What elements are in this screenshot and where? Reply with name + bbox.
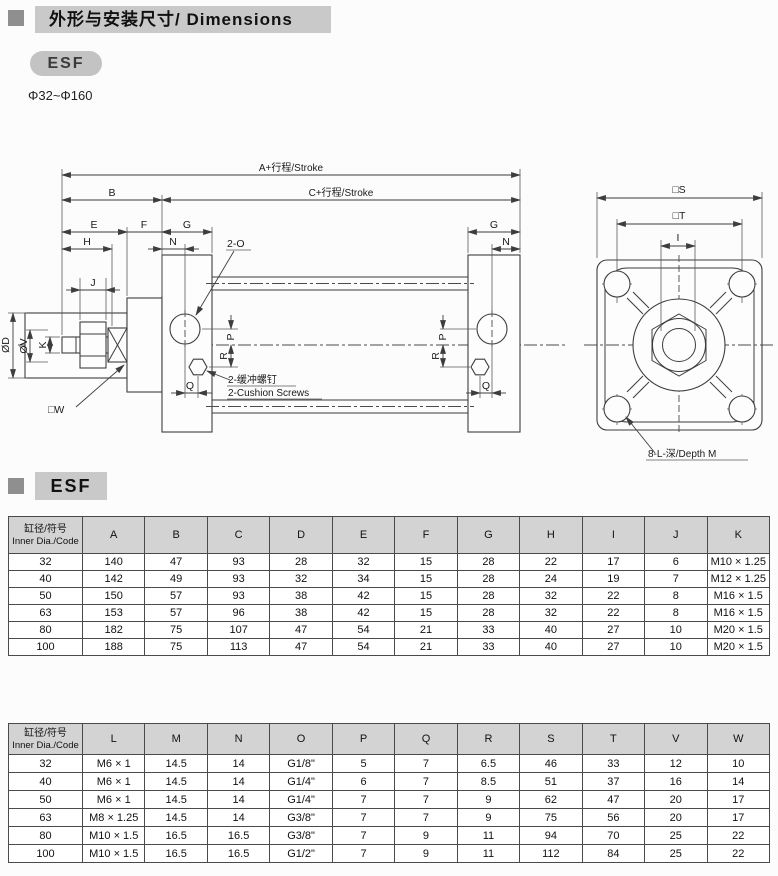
- dimension-cell: 12: [645, 755, 707, 773]
- dimension-cell: 51: [520, 773, 582, 791]
- dimension-cell: 40: [520, 639, 582, 656]
- column-header-f: F: [395, 517, 457, 554]
- bore-code-cell: 63: [9, 605, 83, 622]
- dimension-cell: 11: [457, 845, 519, 863]
- dim-label-a: A+行程/Stroke: [259, 161, 324, 174]
- column-header-g: G: [457, 517, 519, 554]
- rod-boss-circle: [633, 299, 725, 391]
- dim-label-j: J: [90, 277, 95, 289]
- dim-label-e: E: [90, 219, 97, 231]
- dimension-cell: 57: [145, 588, 207, 605]
- column-header-w: W: [707, 724, 769, 755]
- depth-callout: 8-L-深/Depth M: [648, 448, 716, 460]
- dimension-cell: M6 × 1: [83, 773, 145, 791]
- dimension-cell: 22: [707, 845, 769, 863]
- dimension-cell: 22: [582, 605, 644, 622]
- dimension-cell: 22: [582, 588, 644, 605]
- cushion-callout-cn: 2-缓冲螺钉: [228, 373, 277, 386]
- dimension-cell: 54: [332, 622, 394, 639]
- dimension-cell: 15: [395, 588, 457, 605]
- dimension-cell: 14: [207, 791, 269, 809]
- dimension-cell: 22: [520, 554, 582, 571]
- dimension-cell: 7: [395, 773, 457, 791]
- dimension-cell: 14.5: [145, 755, 207, 773]
- dim-label-p-front: P: [225, 333, 237, 340]
- dimension-cell: 84: [582, 845, 644, 863]
- dim-label-b: B: [108, 187, 115, 199]
- dimension-cell: 9: [395, 827, 457, 845]
- port-callout: 2-O: [227, 238, 245, 250]
- dimension-cell: 33: [457, 639, 519, 656]
- dimension-cell: 34: [332, 571, 394, 588]
- dimension-cell: 25: [645, 845, 707, 863]
- dimension-cell: M6 × 1: [83, 791, 145, 809]
- dim-label-r-front: R: [218, 352, 230, 360]
- bore-code-cell: 32: [9, 554, 83, 571]
- column-header-c: C: [207, 517, 269, 554]
- dim-label-g-front: G: [183, 219, 191, 231]
- column-header-h: H: [520, 517, 582, 554]
- dimension-cell: 8: [645, 605, 707, 622]
- dim-label-f: F: [141, 219, 147, 231]
- bore-code-cell: 50: [9, 588, 83, 605]
- dimension-cell: 6.5: [457, 755, 519, 773]
- dimension-cell: 112: [520, 845, 582, 863]
- dimension-cell: 6: [645, 554, 707, 571]
- bore-code-cell: 63: [9, 809, 83, 827]
- dimension-cell: 9: [457, 791, 519, 809]
- bore-code-cell: 100: [9, 845, 83, 863]
- dim-label-q-rear: Q: [482, 380, 490, 392]
- column-header-j: J: [645, 517, 707, 554]
- column-header-e: E: [332, 517, 394, 554]
- section-title: ESF: [35, 472, 107, 500]
- bore-code-cell: 80: [9, 827, 83, 845]
- table-row: 4014249933234152824197M12 × 1.25: [9, 571, 770, 588]
- dimension-cell: 32: [520, 605, 582, 622]
- dimension-cell: 28: [457, 605, 519, 622]
- dimension-cell: 14.5: [145, 773, 207, 791]
- dimension-cell: 14.5: [145, 791, 207, 809]
- dimension-cell: 32: [520, 588, 582, 605]
- bore-code-cell: 32: [9, 755, 83, 773]
- dimension-cell: 57: [145, 605, 207, 622]
- column-header-m: M: [145, 724, 207, 755]
- dimension-cell: 93: [207, 571, 269, 588]
- table-row: 80M10 × 1.516.516.5G3/8"791194702522: [9, 827, 770, 845]
- dimension-cell: 19: [582, 571, 644, 588]
- dimension-cell: 7: [395, 809, 457, 827]
- dimension-cell: M10 × 1.25: [707, 554, 769, 571]
- table-row: 50M6 × 114.514G1/4"77962472017: [9, 791, 770, 809]
- table-row: 1001887511347542133402710M20 × 1.5: [9, 639, 770, 656]
- dimension-cell: 10: [645, 639, 707, 656]
- dimension-cell: 94: [520, 827, 582, 845]
- bore-code-cell: 40: [9, 571, 83, 588]
- dimension-cell: 11: [457, 827, 519, 845]
- dimension-cell: 28: [457, 588, 519, 605]
- dimension-cell: 21: [395, 639, 457, 656]
- column-header-a: A: [83, 517, 145, 554]
- column-header-n: N: [207, 724, 269, 755]
- dimension-cell: 7: [332, 809, 394, 827]
- dimension-cell: 47: [270, 622, 332, 639]
- dimension-cell: 37: [582, 773, 644, 791]
- dimension-cell: 56: [582, 809, 644, 827]
- dimension-cell: 46: [520, 755, 582, 773]
- dimension-cell: 28: [457, 571, 519, 588]
- dimension-cell: G3/8": [270, 827, 332, 845]
- dim-label-ov: ØV: [18, 338, 30, 353]
- table-row: 100M10 × 1.516.516.5G1/2"7911112842522: [9, 845, 770, 863]
- table-row: 32M6 × 114.514G1/8"576.546331210: [9, 755, 770, 773]
- column-header-o: O: [270, 724, 332, 755]
- dimension-cell: 15: [395, 571, 457, 588]
- port-hole-front: [170, 314, 200, 344]
- column-header-q: Q: [395, 724, 457, 755]
- dimension-cell: 75: [145, 622, 207, 639]
- dimension-cell: G1/2": [270, 845, 332, 863]
- bore-code-cell: 100: [9, 639, 83, 656]
- column-header-k: K: [707, 517, 769, 554]
- dimension-cell: 49: [145, 571, 207, 588]
- table-row: 63M8 × 1.2514.514G3/8"77975562017: [9, 809, 770, 827]
- column-header-i: I: [582, 517, 644, 554]
- bore-code-cell: 40: [9, 773, 83, 791]
- dimension-cell: 182: [83, 622, 145, 639]
- dim-label-k: K: [37, 341, 49, 348]
- dim-label-q-front: Q: [186, 380, 194, 392]
- dimension-cell: 22: [707, 827, 769, 845]
- dim-label-i: I: [677, 232, 680, 244]
- dimension-table-l-w: 缸径/符号Inner Dia./CodeLMNOPQRSTVW32M6 × 11…: [8, 723, 770, 863]
- column-header-b: B: [145, 517, 207, 554]
- mount-hole-tl: [604, 271, 630, 297]
- dimension-cell: 10: [645, 622, 707, 639]
- dimension-cell: M20 × 1.5: [707, 622, 769, 639]
- dimension-cell: 140: [83, 554, 145, 571]
- dimension-cell: 153: [83, 605, 145, 622]
- column-header-r: R: [457, 724, 519, 755]
- dim-label-g-rear: G: [490, 219, 498, 231]
- dimension-cell: 93: [207, 554, 269, 571]
- dimension-cell: M10 × 1.5: [83, 827, 145, 845]
- dimension-cell: M16 × 1.5: [707, 588, 769, 605]
- dimension-cell: 14: [207, 809, 269, 827]
- dimension-cell: 7: [332, 791, 394, 809]
- cushion-screw-front: [189, 359, 207, 375]
- dimension-cell: M8 × 1.25: [83, 809, 145, 827]
- column-header-v: V: [645, 724, 707, 755]
- dimension-cell: 14: [207, 755, 269, 773]
- column-header-t: T: [582, 724, 644, 755]
- table-row: 5015057933842152832228M16 × 1.5: [9, 588, 770, 605]
- dimension-cell: 15: [395, 605, 457, 622]
- dimension-cell: G1/8": [270, 755, 332, 773]
- dimension-table-a-k: 缸径/符号Inner Dia./CodeABCDEFGHIJK321404793…: [8, 516, 770, 656]
- table-row: 801827510747542133402710M20 × 1.5: [9, 622, 770, 639]
- dim-label-n-front: N: [169, 236, 177, 248]
- side-view: [18, 255, 566, 432]
- header-row: 缸径/符号Inner Dia./CodeABCDEFGHIJK: [9, 517, 770, 554]
- dimension-cell: 150: [83, 588, 145, 605]
- dim-label-t: □T: [673, 210, 686, 222]
- dimension-cell: 42: [332, 588, 394, 605]
- table-row: 3214047932832152822176M10 × 1.25: [9, 554, 770, 571]
- dimension-cell: 47: [270, 639, 332, 656]
- dimension-cell: 96: [207, 605, 269, 622]
- dimension-cell: 8.5: [457, 773, 519, 791]
- dimension-cell: 54: [332, 639, 394, 656]
- dimension-cell: 7: [395, 755, 457, 773]
- dim-label-n-rear: N: [502, 236, 510, 248]
- dimension-cell: 33: [582, 755, 644, 773]
- dimension-cell: 40: [520, 622, 582, 639]
- dimension-cell: 14: [207, 773, 269, 791]
- end-view: □S □T I 8-L-深/Depth M: [584, 184, 774, 460]
- column-header-s: S: [520, 724, 582, 755]
- dim-label-h: H: [83, 236, 91, 248]
- dimension-cell: 32: [270, 571, 332, 588]
- column-header-code: 缸径/符号Inner Dia./Code: [9, 724, 83, 755]
- dimension-cell: M12 × 1.25: [707, 571, 769, 588]
- mount-hole-br: [729, 396, 755, 422]
- mount-hole-bl: [604, 396, 630, 422]
- dimension-cell: 93: [207, 588, 269, 605]
- dimension-cell: M16 × 1.5: [707, 605, 769, 622]
- table-row: 6315357963842152832228M16 × 1.5: [9, 605, 770, 622]
- dim-label-w: □W: [48, 404, 64, 416]
- bore-code-cell: 50: [9, 791, 83, 809]
- dimension-cell: 17: [582, 554, 644, 571]
- cushion-screw-rear: [471, 359, 489, 375]
- dimension-cell: 70: [582, 827, 644, 845]
- dimension-cell: 27: [582, 639, 644, 656]
- section-marker-icon: [8, 478, 24, 494]
- dimension-cell: 14.5: [145, 809, 207, 827]
- dimension-cell: 24: [520, 571, 582, 588]
- dimension-cell: 47: [582, 791, 644, 809]
- bore-range: Φ32~Φ160: [28, 88, 93, 103]
- header-row: 缸径/符号Inner Dia./CodeLMNOPQRSTVW: [9, 724, 770, 755]
- dimension-cell: 14: [707, 773, 769, 791]
- dimension-cell: 28: [270, 554, 332, 571]
- dim-label-c: C+行程/Stroke: [309, 186, 374, 199]
- dimension-cell: 27: [582, 622, 644, 639]
- bore-code-cell: 80: [9, 622, 83, 639]
- dimension-cell: 38: [270, 605, 332, 622]
- column-header-code: 缸径/符号Inner Dia./Code: [9, 517, 83, 554]
- dimension-cell: 7: [395, 791, 457, 809]
- dimension-cell: G3/8": [270, 809, 332, 827]
- dimension-cell: M10 × 1.5: [83, 845, 145, 863]
- dim-label-r-rear: R: [430, 352, 442, 360]
- dim-label-od: ØD: [0, 337, 12, 353]
- dimension-cell: 10: [707, 755, 769, 773]
- dimension-cell: M20 × 1.5: [707, 639, 769, 656]
- table-row: 40M6 × 114.514G1/4"678.551371614: [9, 773, 770, 791]
- dimension-cell: 9: [457, 809, 519, 827]
- dimension-cell: 16.5: [207, 827, 269, 845]
- column-header-d: D: [270, 517, 332, 554]
- dimension-cell: 5: [332, 755, 394, 773]
- dimension-cell: 7: [645, 571, 707, 588]
- dimension-cell: 188: [83, 639, 145, 656]
- dimension-cell: 107: [207, 622, 269, 639]
- dimension-cell: 33: [457, 622, 519, 639]
- dimension-cell: 38: [270, 588, 332, 605]
- dimension-cell: 16.5: [207, 845, 269, 863]
- dimension-cell: 6: [332, 773, 394, 791]
- dimension-cell: M6 × 1: [83, 755, 145, 773]
- dimension-cell: G1/4": [270, 773, 332, 791]
- dimension-cell: 142: [83, 571, 145, 588]
- dimension-cell: 42: [332, 605, 394, 622]
- dimension-cell: 9: [395, 845, 457, 863]
- dimension-cell: G1/4": [270, 791, 332, 809]
- section-marker-icon: [8, 10, 24, 26]
- dimension-cell: 75: [520, 809, 582, 827]
- dimension-cell: 7: [332, 845, 394, 863]
- dimension-cell: 7: [332, 827, 394, 845]
- dimension-cell: 20: [645, 791, 707, 809]
- dimension-cell: 16.5: [145, 845, 207, 863]
- dimension-cell: 20: [645, 809, 707, 827]
- dimension-cell: 47: [145, 554, 207, 571]
- dimension-cell: 28: [457, 554, 519, 571]
- port-hole-rear: [477, 314, 507, 344]
- dimension-cell: 8: [645, 588, 707, 605]
- dimension-cell: 113: [207, 639, 269, 656]
- page-title: 外形与安装尺寸/ Dimensions: [35, 6, 331, 33]
- dim-label-s: □S: [672, 184, 685, 196]
- dimension-cell: 16: [645, 773, 707, 791]
- column-header-l: L: [83, 724, 145, 755]
- dimension-cell: 16.5: [145, 827, 207, 845]
- dimension-drawing: A+行程/Stroke B C+行程/Stroke E F G G H N N: [0, 145, 778, 475]
- mount-hole-tr: [729, 271, 755, 297]
- dimension-cell: 15: [395, 554, 457, 571]
- series-badge: ESF: [30, 51, 102, 76]
- dimension-cell: 17: [707, 791, 769, 809]
- dimension-cell: 17: [707, 809, 769, 827]
- dimension-cell: 25: [645, 827, 707, 845]
- cushion-callout-en: 2-Cushion Screws: [228, 388, 309, 399]
- dimension-cell: 75: [145, 639, 207, 656]
- catalog-page: 外形与安装尺寸/ Dimensions ESF Φ32~Φ160: [0, 0, 778, 876]
- dimension-cell: 21: [395, 622, 457, 639]
- dim-label-p-rear: P: [437, 333, 449, 340]
- dimension-cell: 32: [332, 554, 394, 571]
- dimension-cell: 62: [520, 791, 582, 809]
- column-header-p: P: [332, 724, 394, 755]
